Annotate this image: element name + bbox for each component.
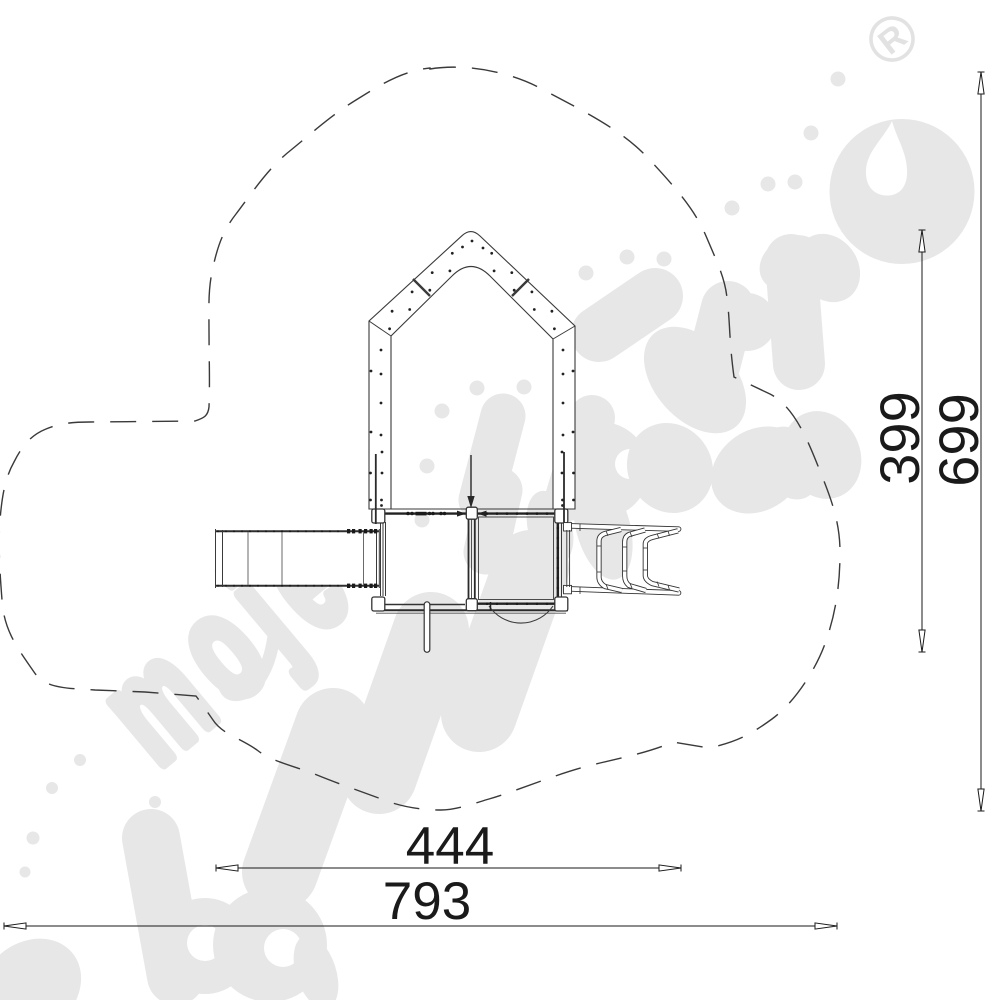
svg-text:444: 444 — [406, 817, 494, 876]
svg-text:793: 793 — [383, 872, 471, 931]
svg-text:399: 399 — [868, 391, 931, 484]
svg-text:699: 699 — [927, 393, 990, 486]
